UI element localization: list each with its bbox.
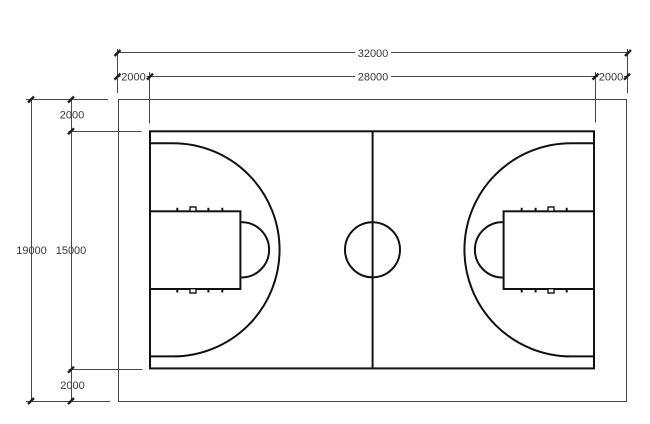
svg-text:28000: 28000 [358, 71, 389, 83]
svg-text:2000: 2000 [60, 380, 84, 392]
svg-text:2000: 2000 [599, 71, 623, 83]
svg-text:32000: 32000 [358, 48, 389, 60]
svg-text:2000: 2000 [121, 71, 145, 83]
